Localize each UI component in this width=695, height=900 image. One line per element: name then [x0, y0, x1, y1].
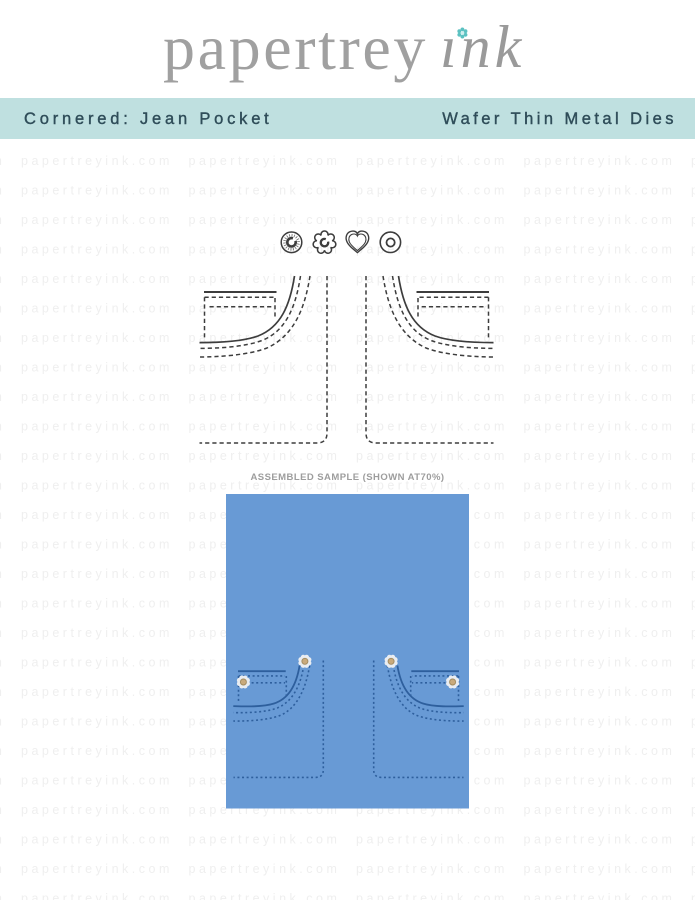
- svg-text:papertrey: papertrey: [163, 12, 428, 83]
- svg-text:ınk: ınk: [440, 14, 525, 80]
